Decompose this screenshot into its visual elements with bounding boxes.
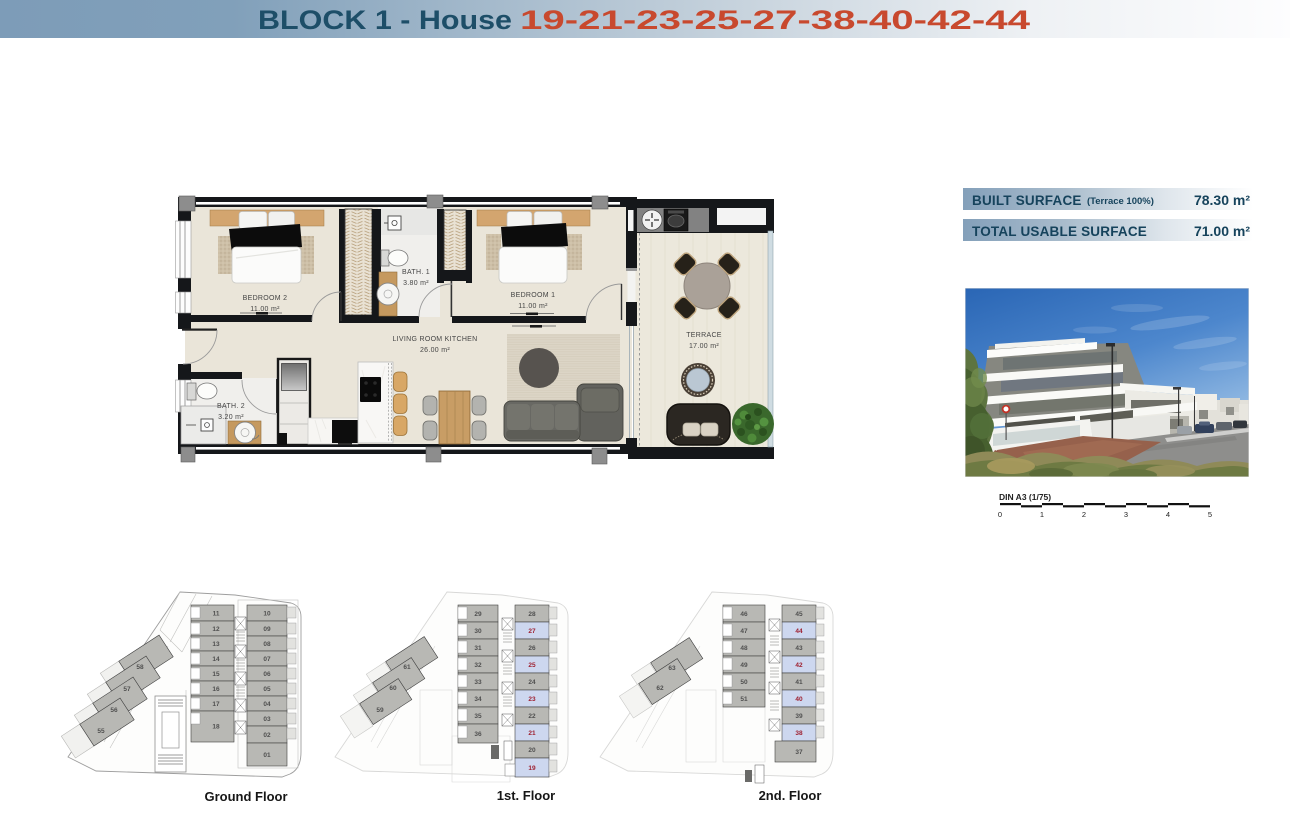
- svg-text:23: 23: [528, 696, 536, 703]
- svg-text:24: 24: [528, 679, 536, 686]
- svg-text:63: 63: [668, 665, 676, 672]
- svg-text:46: 46: [740, 611, 748, 618]
- svg-text:61: 61: [403, 664, 411, 671]
- svg-text:55: 55: [97, 728, 105, 735]
- svg-text:14: 14: [212, 656, 220, 663]
- svg-text:13: 13: [212, 641, 220, 648]
- svg-text:5: 5: [1208, 510, 1212, 519]
- svg-text:2: 2: [1082, 510, 1086, 519]
- svg-text:78.30 m²: 78.30 m²: [1194, 192, 1250, 208]
- svg-text:11.00 m²: 11.00 m²: [518, 303, 548, 310]
- svg-text:1st. Floor: 1st. Floor: [497, 788, 556, 803]
- svg-text:49: 49: [740, 662, 748, 669]
- svg-text:36: 36: [474, 731, 482, 738]
- svg-text:17.00 m²: 17.00 m²: [689, 343, 719, 350]
- svg-text:4: 4: [1166, 510, 1170, 519]
- svg-text:60: 60: [389, 685, 397, 692]
- svg-text:43: 43: [795, 645, 803, 652]
- svg-text:(Terrace 100%): (Terrace 100%): [1087, 196, 1154, 207]
- svg-text:26: 26: [528, 645, 536, 652]
- svg-text:71.00 m²: 71.00 m²: [1194, 223, 1250, 239]
- svg-text:18: 18: [212, 724, 220, 731]
- svg-text:25: 25: [528, 662, 536, 669]
- svg-text:32: 32: [474, 662, 482, 669]
- svg-text:16: 16: [212, 686, 220, 693]
- svg-text:3.20 m²: 3.20 m²: [218, 414, 244, 421]
- svg-text:3: 3: [1124, 510, 1128, 519]
- svg-text:03: 03: [263, 716, 271, 723]
- svg-text:38: 38: [795, 730, 803, 737]
- svg-text:3.80 m²: 3.80 m²: [403, 280, 429, 287]
- svg-text:42: 42: [795, 662, 803, 669]
- svg-text:06: 06: [263, 671, 271, 678]
- svg-text:15: 15: [212, 671, 220, 678]
- svg-text:47: 47: [740, 628, 748, 635]
- svg-text:48: 48: [740, 645, 748, 652]
- svg-text:41: 41: [795, 679, 803, 686]
- svg-text:28: 28: [528, 611, 536, 618]
- svg-text:26.00 m²: 26.00 m²: [420, 347, 450, 354]
- svg-text:TOTAL USABLE SURFACE: TOTAL USABLE SURFACE: [972, 224, 1147, 239]
- svg-text:51: 51: [740, 696, 748, 703]
- svg-text:BEDROOM 2: BEDROOM 2: [243, 295, 288, 302]
- svg-text:10: 10: [263, 611, 271, 618]
- svg-text:39: 39: [795, 713, 803, 720]
- svg-text:45: 45: [795, 611, 803, 618]
- svg-text:58: 58: [136, 664, 144, 671]
- svg-text:BATH. 2: BATH. 2: [217, 403, 245, 410]
- svg-text:33: 33: [474, 679, 482, 686]
- svg-text:34: 34: [474, 696, 482, 703]
- svg-text:40: 40: [795, 696, 803, 703]
- svg-text:08: 08: [263, 641, 271, 648]
- svg-text:11: 11: [213, 611, 220, 618]
- svg-text:37: 37: [795, 749, 803, 756]
- svg-text:09: 09: [263, 626, 271, 633]
- svg-text:Ground Floor: Ground Floor: [204, 789, 287, 804]
- svg-text:11.00 m²: 11.00 m²: [250, 306, 280, 313]
- svg-text:27: 27: [528, 628, 536, 635]
- svg-text:04: 04: [263, 701, 271, 708]
- svg-text:02: 02: [263, 732, 271, 739]
- svg-text:35: 35: [474, 713, 482, 720]
- svg-text:12: 12: [212, 626, 220, 633]
- svg-text:22: 22: [528, 713, 536, 720]
- svg-text:TERRACE: TERRACE: [686, 332, 722, 339]
- svg-text:19: 19: [528, 765, 536, 772]
- svg-text:01: 01: [263, 752, 271, 759]
- svg-text:05: 05: [263, 686, 271, 693]
- svg-text:19-21-23-25-27-38-40-42-44: 19-21-23-25-27-38-40-42-44: [520, 5, 1030, 35]
- svg-text:59: 59: [376, 707, 384, 714]
- svg-text:62: 62: [656, 685, 664, 692]
- svg-text:20: 20: [528, 747, 536, 754]
- svg-text:2nd. Floor: 2nd. Floor: [759, 788, 822, 803]
- svg-text:BATH. 1: BATH. 1: [402, 269, 430, 276]
- svg-text:21: 21: [528, 730, 536, 737]
- svg-text:BLOCK 1 - House: BLOCK 1 - House: [258, 5, 512, 35]
- svg-text:LIVING ROOM KITCHEN: LIVING ROOM KITCHEN: [392, 336, 477, 343]
- svg-text:31: 31: [474, 645, 482, 652]
- svg-text:BUILT SURFACE: BUILT SURFACE: [972, 193, 1082, 208]
- svg-text:07: 07: [263, 656, 271, 663]
- svg-text:57: 57: [123, 686, 131, 693]
- svg-text:44: 44: [795, 628, 803, 635]
- svg-text:29: 29: [474, 611, 482, 618]
- svg-text:56: 56: [110, 707, 118, 714]
- svg-text:DIN A3 (1/75): DIN A3 (1/75): [999, 492, 1051, 502]
- svg-text:30: 30: [474, 628, 482, 635]
- svg-text:BEDROOM 1: BEDROOM 1: [511, 292, 556, 299]
- svg-text:17: 17: [212, 701, 220, 708]
- svg-text:1: 1: [1040, 510, 1044, 519]
- svg-text:50: 50: [740, 679, 748, 686]
- svg-text:0: 0: [998, 510, 1002, 519]
